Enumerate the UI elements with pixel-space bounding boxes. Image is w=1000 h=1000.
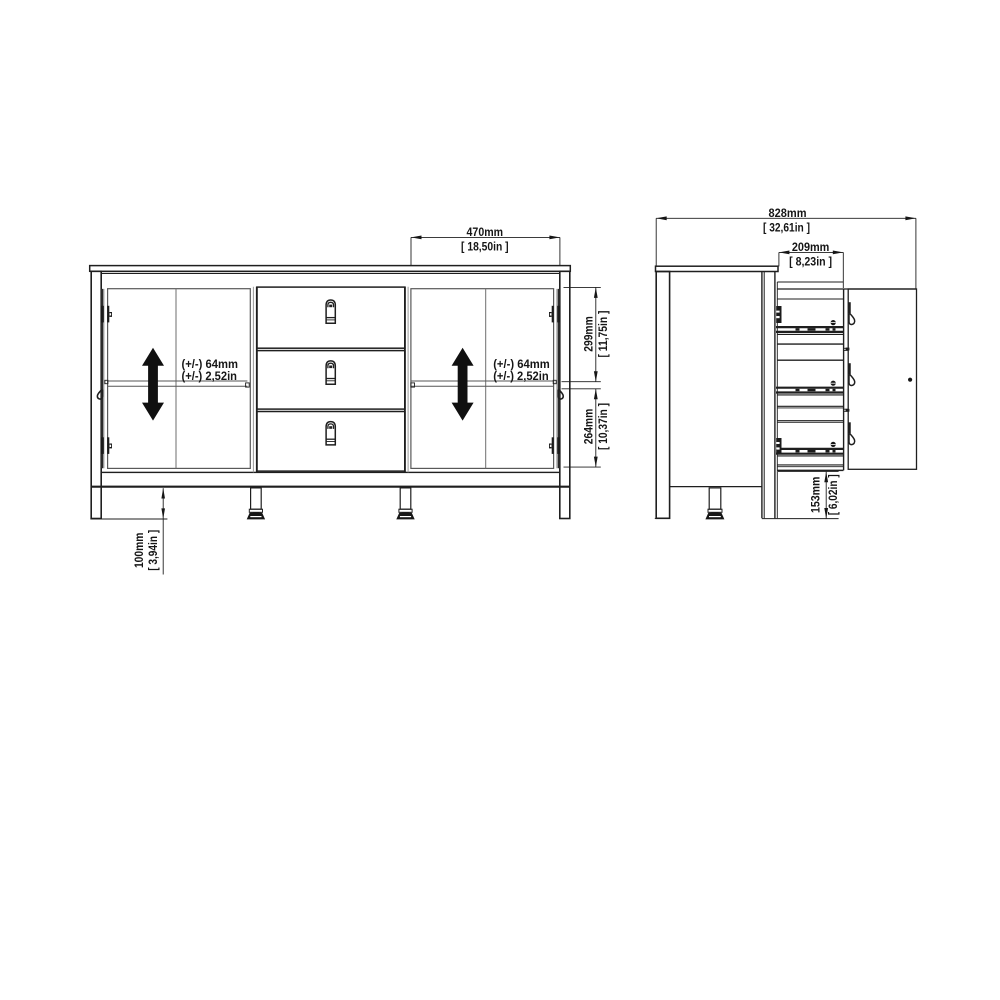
svg-text:299mm: 299mm (583, 316, 596, 352)
svg-text:(+/-) 2,52in: (+/-) 2,52in (182, 370, 238, 383)
svg-text:153mm: 153mm (810, 477, 823, 514)
svg-text:[ 8,23in ]: [ 8,23in ] (789, 256, 832, 269)
svg-text:[ 10,37in ]: [ 10,37in ] (597, 403, 610, 450)
svg-text:[ 6,02in ]: [ 6,02in ] (827, 474, 840, 515)
svg-text:209mm: 209mm (792, 241, 830, 254)
svg-text:828mm: 828mm (769, 207, 807, 220)
svg-text:[ 3,94in ]: [ 3,94in ] (147, 530, 160, 571)
svg-text:264mm: 264mm (583, 409, 596, 445)
svg-text:100mm: 100mm (133, 533, 146, 569)
svg-text:[ 32,61in ]: [ 32,61in ] (763, 222, 810, 235)
svg-text:[ 11,75in ]: [ 11,75in ] (597, 310, 610, 357)
svg-text:(+/-) 2,52in: (+/-) 2,52in (493, 370, 549, 383)
svg-text:470mm: 470mm (467, 226, 504, 239)
svg-text:[ 18,50in ]: [ 18,50in ] (461, 241, 509, 254)
